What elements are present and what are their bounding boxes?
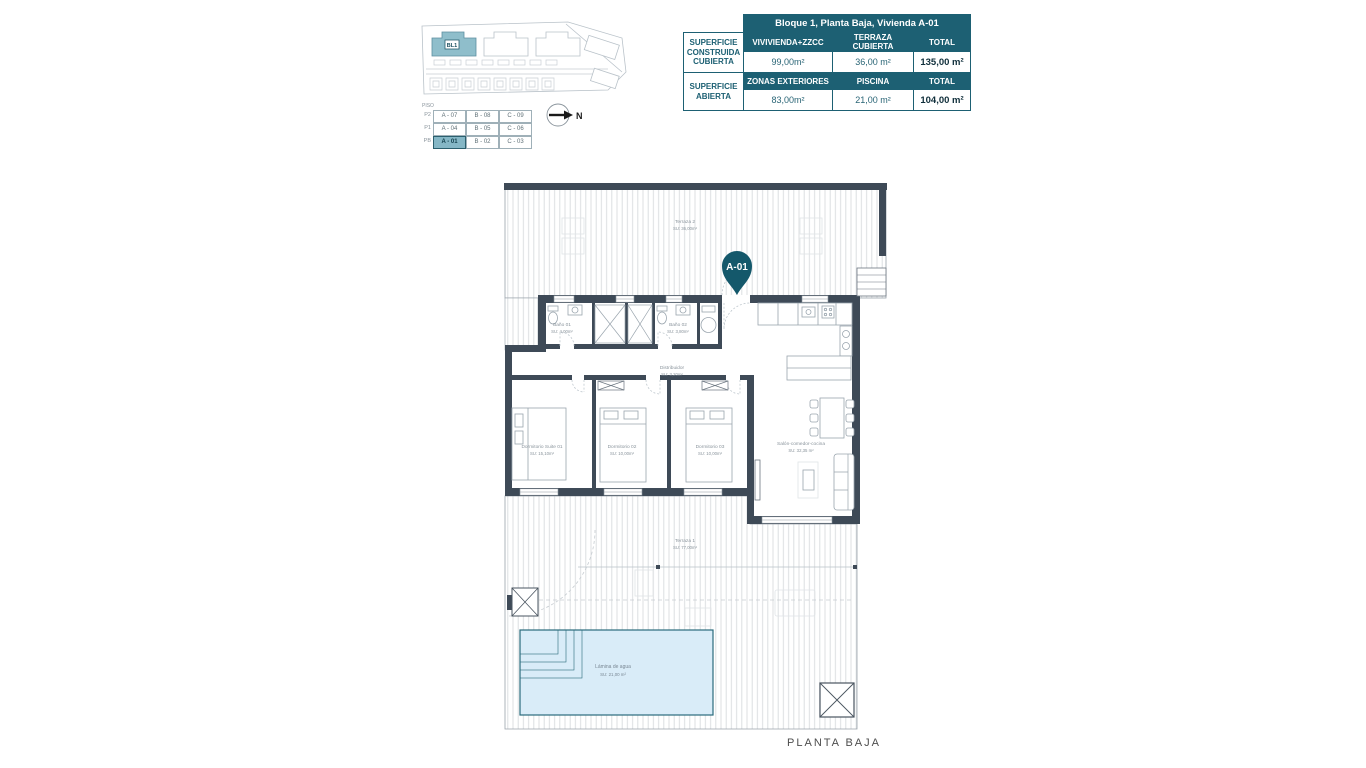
site-plan-houses xyxy=(430,60,557,90)
unit-cell[interactable]: B - 08 xyxy=(466,110,499,123)
outdoor-shower-icon xyxy=(507,588,538,616)
header-vivienda-zzcc: VIVIVIENDA+ZZCC xyxy=(744,33,833,52)
banyo2-area: SU: 3,80m² xyxy=(667,329,689,334)
distribuidor-label: Distribuidor xyxy=(660,365,685,371)
terrace-steps xyxy=(857,268,886,296)
unit-cell[interactable]: C - 06 xyxy=(499,123,532,136)
dorm2-label: Dormitorio 02 xyxy=(608,444,637,450)
pool-label: Lámina de agua xyxy=(595,664,631,670)
terraza1-area: SU: 77,00m² xyxy=(673,545,698,550)
floorplan-page: BL1 PISO P2 A - 07 B - 08 C - 09 xyxy=(0,0,1366,768)
unit-cell[interactable]: C - 03 xyxy=(499,136,532,149)
value-total-abierta: 104,00 m² xyxy=(914,90,971,111)
suite-label: Dormitorio Suite 01 xyxy=(521,444,562,450)
banyo2-label: Baño 02 xyxy=(669,322,687,328)
unit-cell[interactable]: B - 05 xyxy=(466,123,499,136)
floor-label-p2: P2 xyxy=(420,110,433,123)
salon-area: SU: 32,35 m² xyxy=(788,448,814,453)
north-compass-icon: N xyxy=(545,102,585,128)
value-piscina: 21,00 m² xyxy=(833,90,914,111)
header-piscina: PISCINA xyxy=(833,73,914,90)
building-block-1-highlighted[interactable]: BL1 xyxy=(432,32,476,56)
suite-area: SU: 15,10m² xyxy=(530,451,555,456)
block-label: BL1 xyxy=(447,43,457,49)
pool-area: SU: 21,00 m² xyxy=(600,672,626,677)
unit-cell-selected-a01[interactable]: A - 01 xyxy=(433,136,466,149)
entry-opening xyxy=(722,295,750,303)
salon-label: Salón-comedor-cocina xyxy=(777,441,825,447)
dorm3-area: SU: 10,00m² xyxy=(698,451,723,456)
value-zonas-exteriores: 83,00m² xyxy=(744,90,833,111)
unit-cell[interactable]: C - 09 xyxy=(499,110,532,123)
terraza1-label: Terraza 1 xyxy=(675,538,695,544)
unit-cell[interactable]: B - 02 xyxy=(466,136,499,149)
value-total-construida: 135,00 m² xyxy=(914,52,971,73)
banyo1-area: SU: 4,00m² xyxy=(551,329,573,334)
floors-table-corner-label: PISO xyxy=(422,103,532,110)
header-total-2: TOTAL xyxy=(914,73,971,90)
floor-label-p1: P1 xyxy=(420,123,433,136)
distribuidor-area: SU: 3,20m² xyxy=(661,372,683,377)
site-plan-map: BL1 xyxy=(408,12,636,102)
header-terraza-cubierta: TERRAZA CUBIERTA xyxy=(833,33,914,52)
header-total-1: TOTAL xyxy=(914,33,971,52)
unit-cell[interactable]: A - 04 xyxy=(433,123,466,136)
compass-letter: N xyxy=(576,111,583,121)
surface-summary-table: Bloque 1, Planta Baja, Vivienda A-01 SUP… xyxy=(683,14,971,111)
dining-table xyxy=(810,398,854,438)
banyo1-label: Baño 01 xyxy=(553,322,571,328)
floors-units-table: PISO P2 A - 07 B - 08 C - 09 P1 A - 04 B… xyxy=(420,103,532,149)
pool: Lámina de agua SU: 21,00 m² xyxy=(520,630,713,715)
floor-label-pb: PB xyxy=(420,136,433,149)
dorm2-area: SU: 10,00m² xyxy=(610,451,635,456)
pin-label: A-01 xyxy=(726,262,748,273)
label-superficie-construida: SUPERFICIE CONSTRUIDA CUBIERTA xyxy=(684,33,744,73)
summary-title: Bloque 1, Planta Baja, Vivienda A-01 xyxy=(744,15,971,33)
plan-title: PLANTA BAJA xyxy=(744,737,924,749)
value-terraza-cubierta: 36,00 m² xyxy=(833,52,914,73)
unit-cell[interactable]: A - 07 xyxy=(433,110,466,123)
terrace-x-square xyxy=(820,683,854,717)
header-zonas-exteriores: ZONAS EXTERIORES xyxy=(744,73,833,90)
value-vivienda-zzcc: 99,00m² xyxy=(744,52,833,73)
floor-plan: Lámina de agua SU: 21,00 m² Terraza 2 SU… xyxy=(500,178,895,735)
terraza2-area: SU: 36,00m² xyxy=(673,226,698,231)
label-superficie-abierta: SUPERFICIE ABIERTA xyxy=(684,73,744,111)
dorm3-label: Dormitorio 03 xyxy=(696,444,725,450)
terraza2-label: Terraza 2 xyxy=(675,219,695,225)
